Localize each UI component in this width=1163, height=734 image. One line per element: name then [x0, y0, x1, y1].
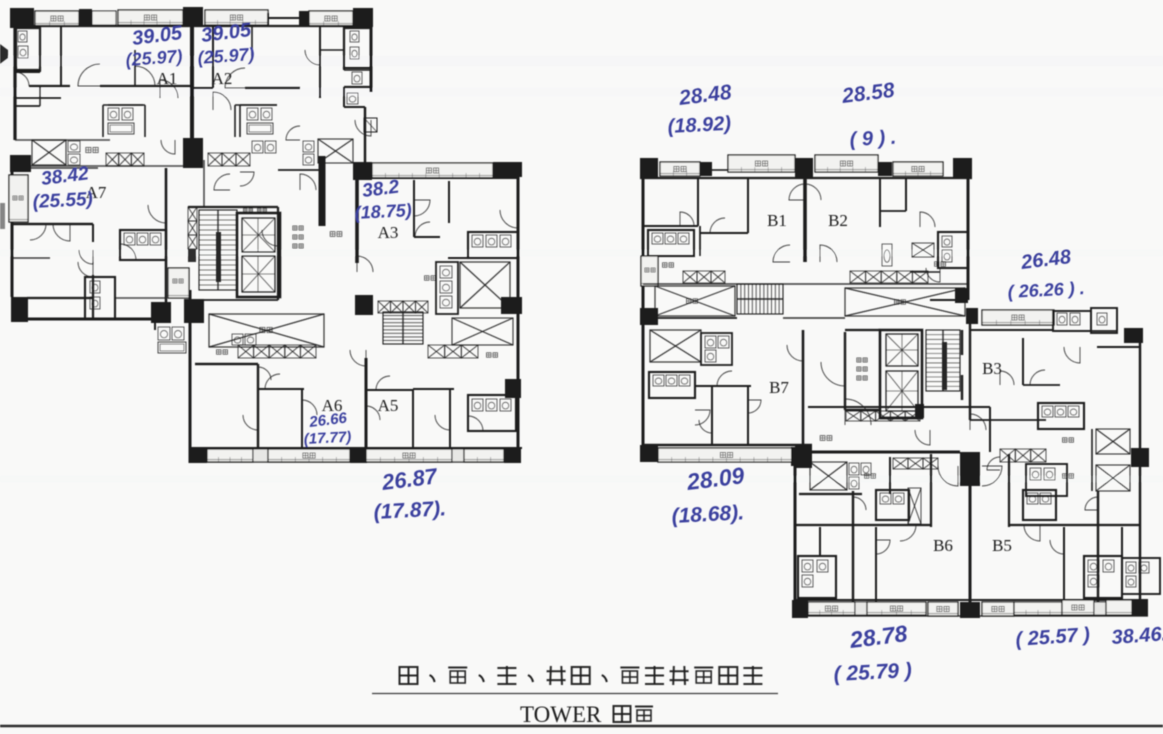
svg-text:( 26.26 ) .: ( 26.26 ) . — [1007, 278, 1085, 302]
svg-text:(17.87).: (17.87). — [373, 497, 446, 524]
svg-text:B1: B1 — [767, 211, 787, 230]
svg-text:(25.55): (25.55) — [32, 189, 93, 213]
svg-text:(18.92): (18.92) — [667, 113, 732, 138]
svg-text:(25.97): (25.97) — [125, 46, 183, 70]
svg-text:(25.97): (25.97) — [197, 44, 255, 68]
svg-text:B6: B6 — [933, 536, 953, 555]
svg-text:(17.77): (17.77) — [303, 429, 351, 448]
svg-text:( 25.79 ): ( 25.79 ) — [833, 659, 912, 686]
svg-text:A5: A5 — [378, 396, 399, 415]
svg-text:TOWER: TOWER — [520, 702, 602, 727]
svg-text:A3: A3 — [378, 223, 399, 242]
svg-text:B2: B2 — [828, 211, 848, 230]
svg-text:A2: A2 — [212, 69, 233, 88]
svg-text:( 9 ) .: ( 9 ) . — [849, 127, 897, 151]
svg-text:B5: B5 — [992, 536, 1012, 555]
svg-text:B7: B7 — [769, 378, 789, 397]
svg-text:(18.68).: (18.68). — [671, 501, 744, 528]
svg-text:(18.75): (18.75) — [354, 200, 412, 223]
svg-text:38.46.: 38.46. — [1111, 623, 1163, 649]
svg-text:B3: B3 — [982, 359, 1002, 378]
